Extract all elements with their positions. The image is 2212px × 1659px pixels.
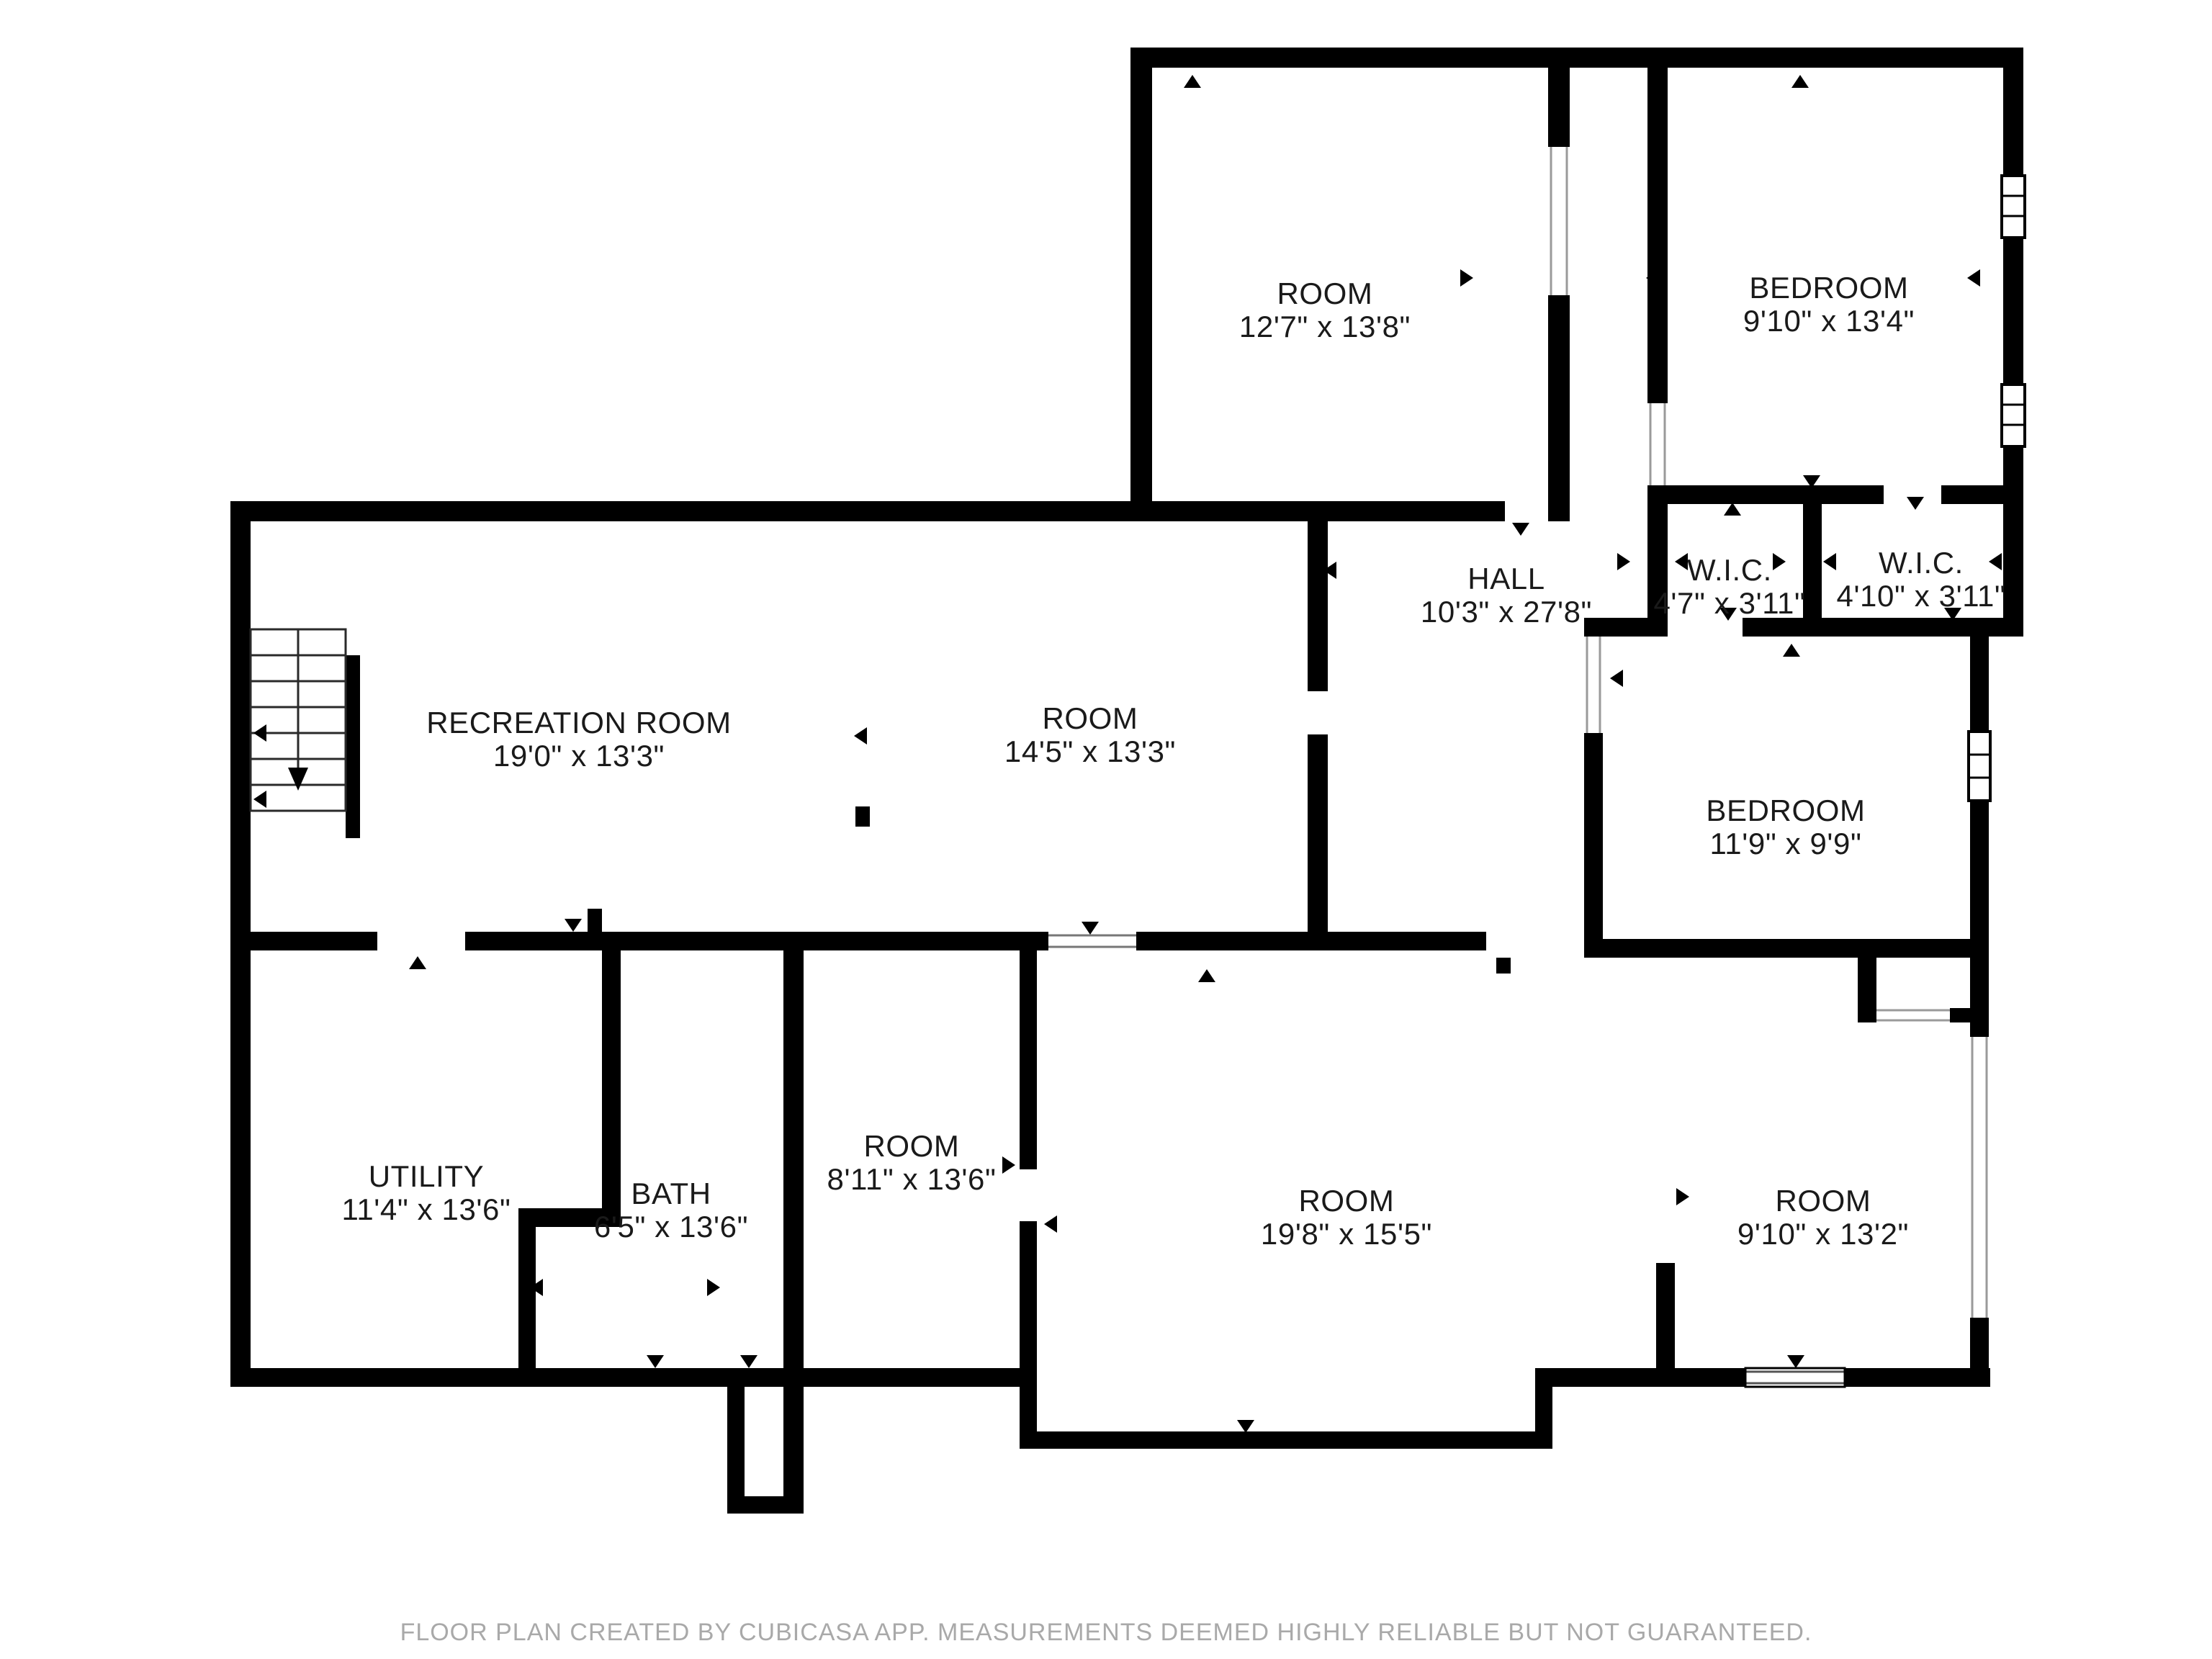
walls (230, 48, 2023, 1514)
wall-room198-bottom (1020, 1431, 1552, 1449)
wall-well-right (783, 1368, 804, 1514)
room-dims: 6'5" x 13'6" (594, 1211, 748, 1244)
window-bottom-icon (1745, 1368, 1845, 1387)
room-name: BEDROOM (1743, 272, 1915, 305)
wall-top-room-left (1130, 68, 1152, 521)
wall-room811-right-lower (1020, 1221, 1037, 1449)
window-row647-icon (1048, 932, 1136, 950)
room-label-wic2: W.I.C. 4'10" x 3'11" (1836, 547, 2005, 613)
wall-top-room-right (1548, 295, 1570, 521)
wall-row647-c (1136, 932, 1328, 950)
wall-utility-bath (602, 950, 621, 1208)
room-name: RECREATION ROOM (426, 707, 732, 740)
wall-recreation-top (230, 501, 1505, 521)
room-name: HALL (1421, 563, 1592, 596)
wall-central-upper (1308, 521, 1328, 691)
wall-bedroom2-top-stub (1584, 618, 1665, 637)
window-icon (2002, 385, 2025, 446)
stairs-icon (251, 629, 346, 811)
wall-row647-a (230, 932, 377, 950)
wall-right-outer-1 (2003, 48, 2023, 176)
room-dims: 11'9" x 9'9" (1706, 828, 1865, 861)
wall-central-lower (1308, 734, 1328, 950)
disclaimer-text: FLOOR PLAN CREATED BY CUBICASA APP. MEAS… (0, 1619, 2212, 1647)
room-label-hall: HALL 10'3" x 27'8" (1421, 563, 1592, 629)
room-name: ROOM (1261, 1185, 1432, 1218)
room-name: ROOM (827, 1130, 996, 1164)
wall-niche-left (518, 1227, 536, 1368)
window-icon (1969, 732, 1990, 801)
room-dims: 10'3" x 27'8" (1421, 596, 1592, 629)
stairs-down-arrow (288, 768, 308, 791)
room-dims: 19'0" x 13'3" (426, 740, 732, 773)
window-icon (2002, 176, 2025, 238)
room-dims: 14'5" x 13'3" (1004, 736, 1176, 769)
room-label-room910: ROOM 9'10" x 13'2" (1737, 1185, 1909, 1251)
wall-top-outer (1130, 48, 2023, 68)
room-label-recreation: RECREATION ROOM 19'0" x 13'3" (426, 707, 732, 773)
wall-bedroom2-bottom (1584, 939, 1970, 958)
wall-room-divider (1656, 1263, 1675, 1368)
room-dims: 9'10" x 13'2" (1737, 1218, 1909, 1251)
wall-room910-bottom-right (1845, 1368, 1990, 1387)
floor-plan-drawing (0, 0, 2212, 1659)
room-dims: 4'7" x 3'11" (1653, 588, 1805, 621)
room-dims: 4'10" x 3'11" (1836, 580, 2005, 613)
room-label-bedroom-mid: BEDROOM 11'9" x 9'9" (1706, 795, 1865, 861)
wall-right-outer-3 (2003, 446, 2023, 637)
room-dims: 11'4" x 13'6" (341, 1194, 511, 1227)
wall-row647-d (1328, 932, 1486, 950)
room-name: W.I.C. (1836, 547, 2005, 580)
room-label-top-room: ROOM 12'7" x 13'8" (1239, 278, 1411, 344)
wall-top-room-right-stub (1548, 68, 1570, 147)
room-label-bedroom-top: BEDROOM 9'10" x 13'4" (1743, 272, 1915, 338)
room-label-room811: ROOM 8'11" x 13'6" (827, 1130, 996, 1197)
pillar-hall (1496, 958, 1511, 974)
room-label-wic1: W.I.C. 4'7" x 3'11" (1653, 554, 1805, 621)
wall-well-bottom (727, 1496, 804, 1514)
room-name: ROOM (1239, 278, 1411, 311)
room-label-utility: UTILITY 11'4" x 13'6" (341, 1161, 511, 1227)
room-name: ROOM (1737, 1185, 1909, 1218)
room-dims: 8'11" x 13'6" (827, 1164, 996, 1197)
room-dims: 12'7" x 13'8" (1239, 311, 1411, 344)
wall-room811-left (783, 950, 804, 1368)
room-label-bath: BATH 6'5" x 13'6" (594, 1178, 748, 1244)
pillar-center (855, 806, 870, 827)
wall-well-left (727, 1387, 745, 1514)
wall-room811-bottom (804, 1368, 1020, 1387)
room-name: UTILITY (341, 1161, 511, 1194)
wall-room910-bottom-left (1535, 1368, 1745, 1387)
room-label-room145: ROOM 14'5" x 13'3" (1004, 703, 1176, 769)
wall-room811-right-upper (1020, 950, 1037, 1169)
wall-closet-left (1858, 958, 1876, 1022)
room-label-room198: ROOM 19'8" x 15'5" (1261, 1185, 1432, 1251)
room-dims: 19'8" x 15'5" (1261, 1218, 1432, 1251)
wall-row647-b (465, 932, 1048, 950)
wall-bedroom-left (1647, 68, 1668, 403)
wall-right-inset-1 (1970, 618, 1989, 732)
room-name: BATH (594, 1178, 748, 1211)
wall-bottom-left-outer (230, 1368, 806, 1387)
floor-plan-page: ROOM 12'7" x 13'8" BEDROOM 9'10" x 13'4"… (0, 0, 2212, 1659)
wall-right-inset-2 (1970, 801, 1989, 1037)
room-name: ROOM (1004, 703, 1176, 736)
room-dims: 9'10" x 13'4" (1743, 305, 1915, 338)
wall-bedroom2-left (1584, 733, 1603, 939)
window-long-icon (1972, 1037, 1987, 1318)
room-name: W.I.C. (1653, 554, 1805, 588)
wall-wic-top-left (1647, 485, 1884, 504)
wall-stub-pillar (588, 909, 602, 932)
wall-stairs-side (346, 655, 360, 838)
wall-closet-stub (1950, 1008, 1970, 1022)
wall-right-outer-2 (2003, 238, 2023, 385)
room-name: BEDROOM (1706, 795, 1865, 828)
wall-wic-divider (1803, 485, 1822, 637)
